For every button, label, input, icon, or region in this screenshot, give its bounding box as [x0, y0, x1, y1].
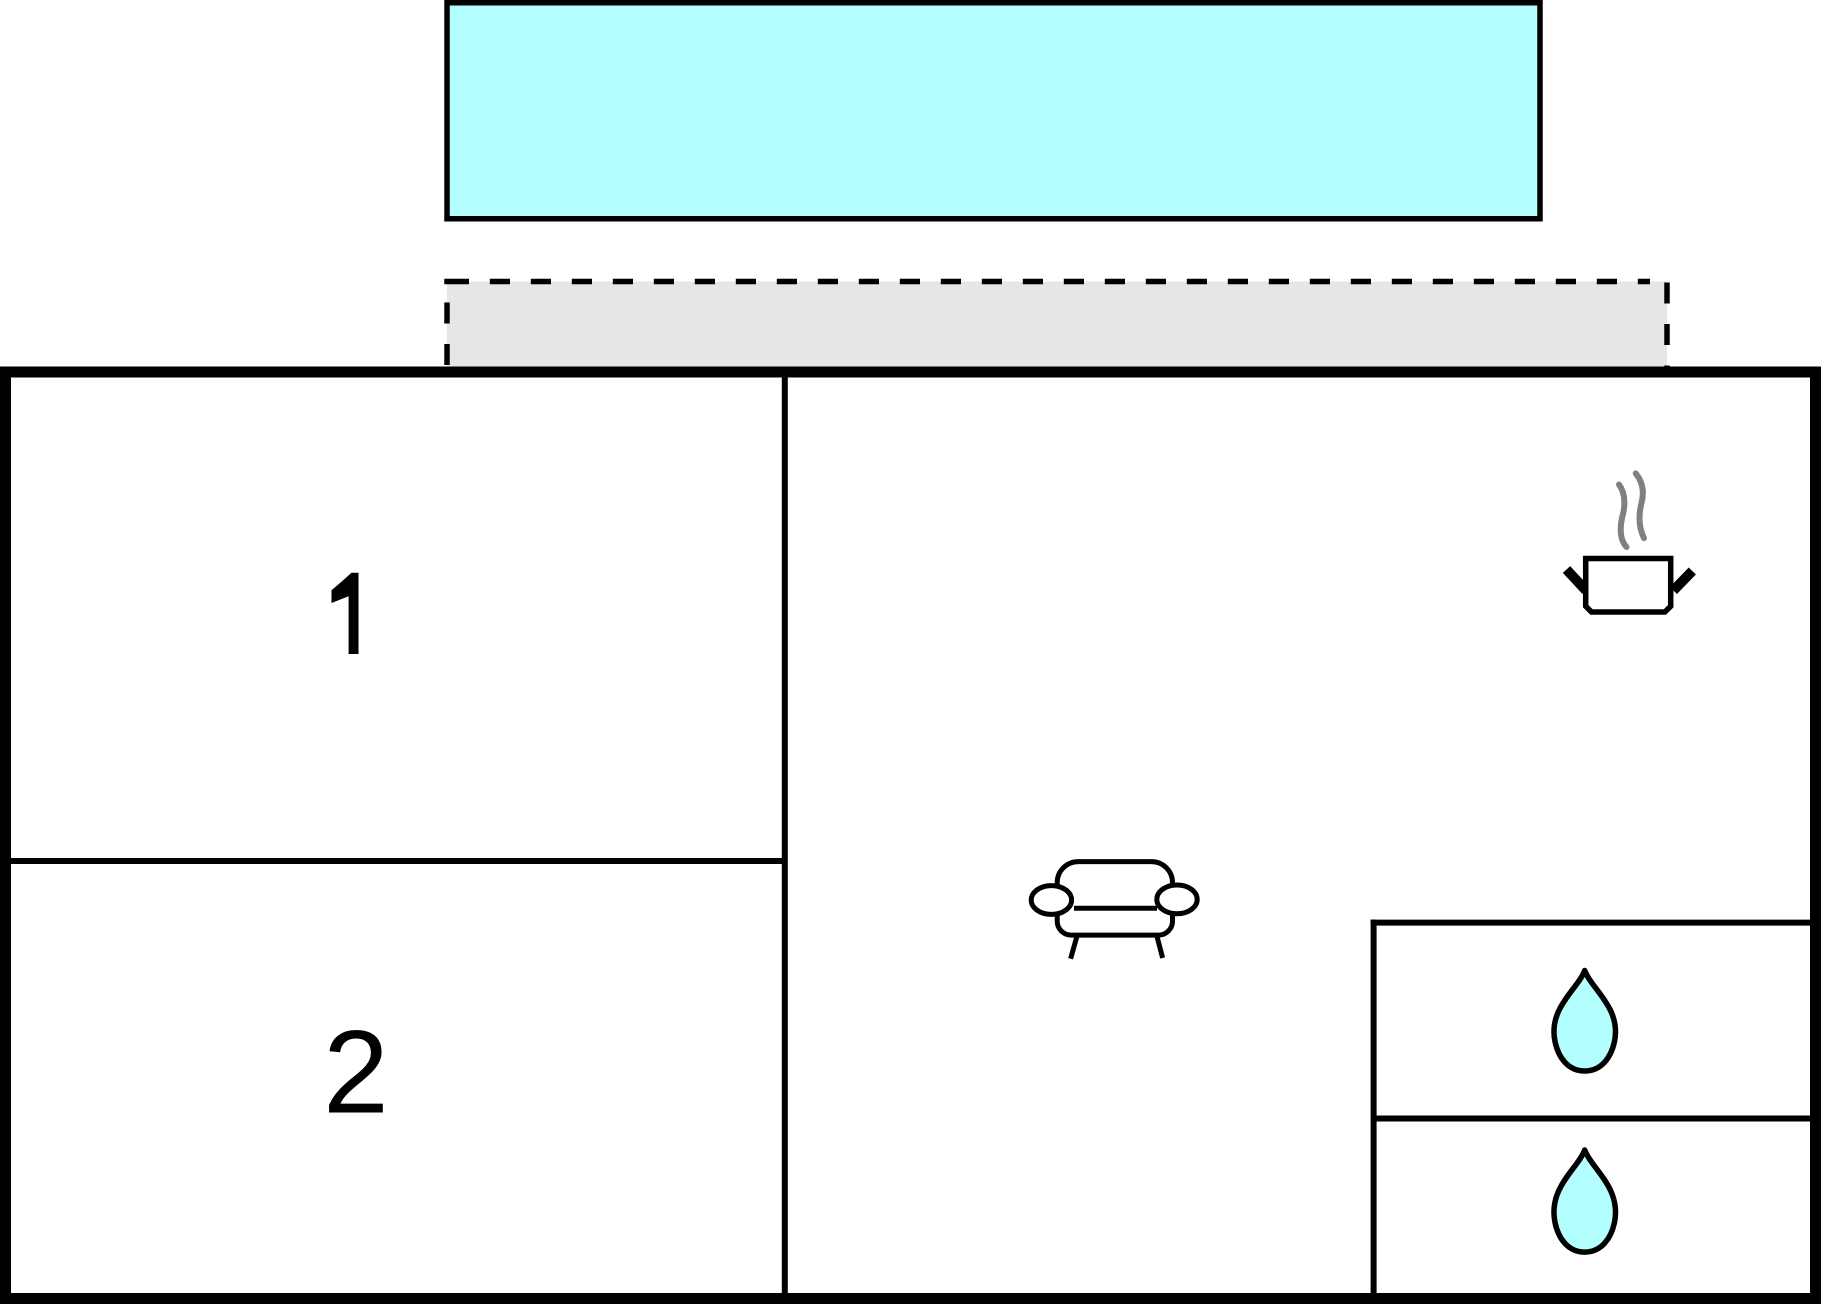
svg-text:2: 2 [323, 1007, 389, 1139]
